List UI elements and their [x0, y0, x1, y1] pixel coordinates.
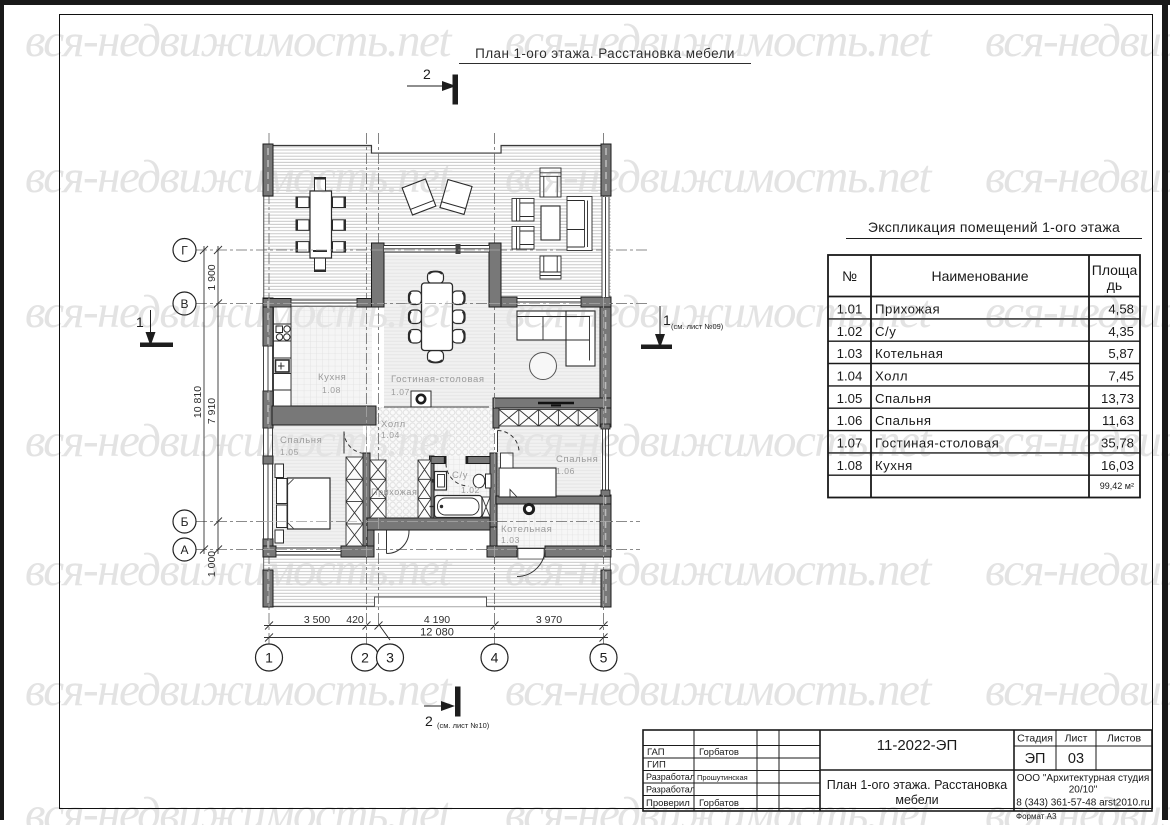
- svg-text:Лист: Лист: [1065, 733, 1088, 745]
- svg-text:Листов: Листов: [1107, 733, 1142, 745]
- svg-text:Стадия: Стадия: [1017, 733, 1053, 745]
- svg-text:ГИП: ГИП: [647, 760, 666, 771]
- svg-text:ГАП: ГАП: [647, 747, 665, 758]
- svg-text:11-2022-ЭП: 11-2022-ЭП: [877, 737, 958, 754]
- svg-text:Прошутинская: Прошутинская: [697, 773, 748, 782]
- svg-text:Разработал: Разработал: [646, 772, 695, 782]
- svg-text:Горбатов: Горбатов: [699, 747, 739, 758]
- svg-text:ЭП: ЭП: [1025, 751, 1046, 767]
- svg-text:ООО "Архитектурная студия: ООО "Архитектурная студия: [1017, 773, 1150, 784]
- svg-text:03: 03: [1068, 751, 1084, 767]
